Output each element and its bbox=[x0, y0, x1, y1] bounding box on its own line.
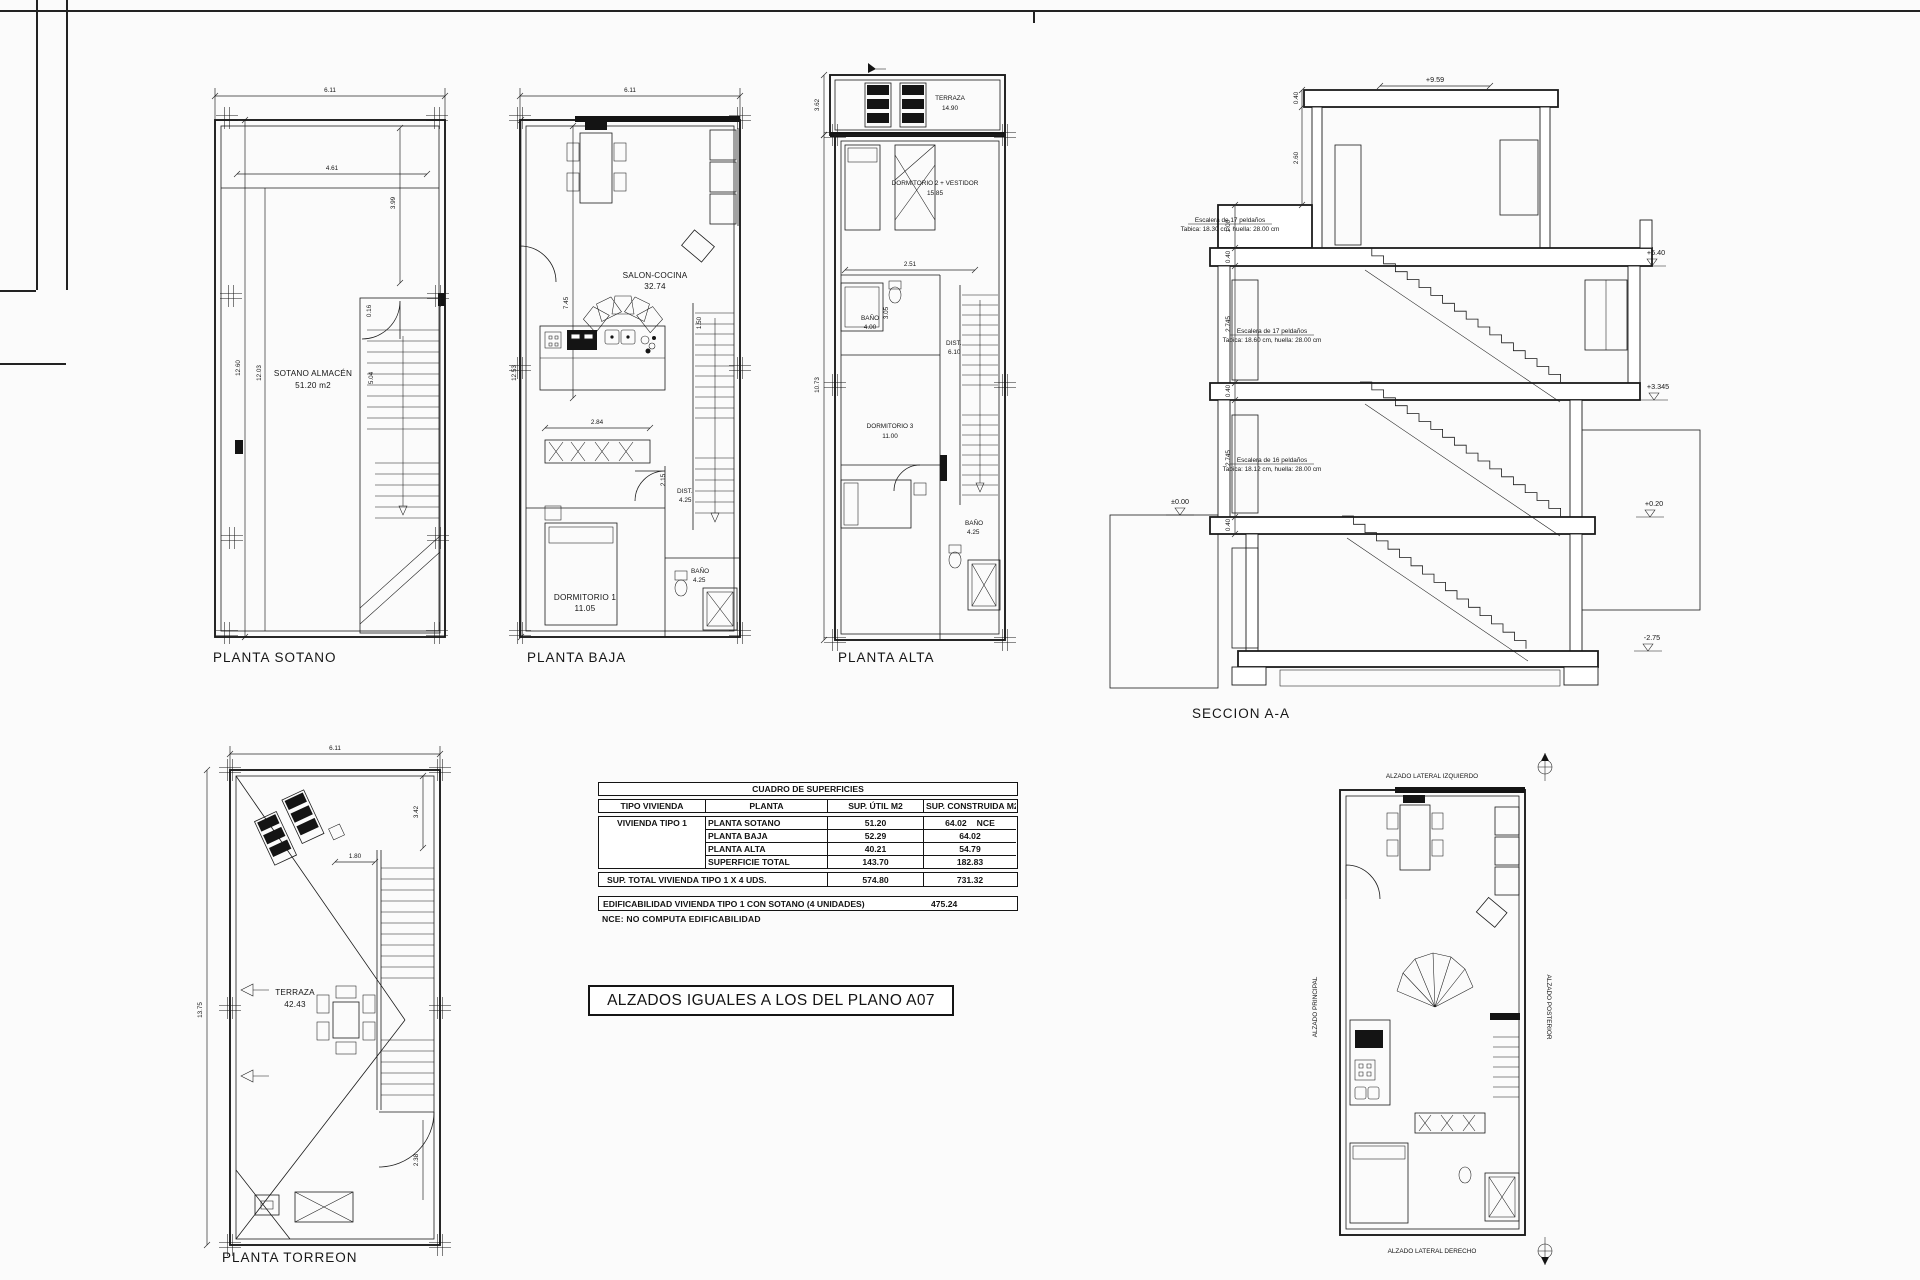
baja-wardrobe bbox=[545, 440, 650, 463]
room-area-dorm3: 11.00 bbox=[882, 433, 898, 440]
svg-text:0.40: 0.40 bbox=[1225, 384, 1232, 397]
dim-label: 10.73 bbox=[814, 377, 821, 393]
section-ground bbox=[1110, 430, 1700, 688]
torreon-table-set bbox=[317, 986, 375, 1054]
dim-label: 3.62 bbox=[814, 98, 821, 111]
room-area-dist: 6.10 bbox=[948, 349, 961, 356]
dim-label: 6.11 bbox=[324, 87, 336, 94]
svg-text:0.40: 0.40 bbox=[1225, 250, 1232, 263]
sheet-frame-left-inner bbox=[66, 0, 68, 290]
dim-label: 13.75 bbox=[197, 1002, 204, 1018]
title-planta-alta: PLANTA ALTA bbox=[838, 650, 935, 665]
title-planta-baja: PLANTA BAJA bbox=[527, 650, 626, 665]
room-area-terraza: 14.90 bbox=[942, 105, 958, 112]
svg-text:Tabica: 18.12 cm, huella: 28.0: Tabica: 18.12 cm, huella: 28.00 cm bbox=[1223, 466, 1322, 473]
dim-label: 3.05 bbox=[883, 306, 890, 319]
title-seccion: SECCION A-A bbox=[1192, 706, 1290, 721]
alta-columns bbox=[824, 124, 1016, 651]
dim-label: 2.51 bbox=[904, 261, 917, 268]
svg-text:Escalera de 16 peldaños: Escalera de 16 peldaños bbox=[1237, 457, 1307, 464]
baja-walls bbox=[520, 116, 740, 637]
room-area-dist: 4.25 bbox=[679, 497, 692, 504]
room-area-bano1: 4.00 bbox=[864, 324, 877, 331]
plan-baja: 6.11 12.53 7.45 2.84 2.15 bbox=[505, 68, 760, 668]
plan-torreon: 6.11 13.75 3.42 1.80 2.38 bbox=[195, 740, 465, 1264]
dim-label: 3.99 bbox=[390, 196, 397, 209]
dim-label: 5.04 bbox=[368, 371, 375, 384]
nce-tag: NCE bbox=[977, 818, 995, 828]
room-area-terraza-torreon: 42.43 bbox=[284, 1000, 306, 1009]
table-title: CUADRO DE SUPERFICIES bbox=[598, 782, 1018, 796]
alta-stair bbox=[960, 285, 998, 505]
dim-label: 12.60 bbox=[235, 360, 242, 376]
alzado-key-plan: ALZADO LATERAL IZQUIERDO ALZADO PRINCIPA… bbox=[1295, 745, 1565, 1273]
room-label-dorm3: DORMITORIO 3 bbox=[867, 423, 914, 430]
baja-bath bbox=[675, 571, 737, 630]
room-label-sotano: SOTANO ALMACÉN bbox=[274, 368, 352, 378]
table-edificabilidad-row: EDIFICABILIDAD VIVIENDA TIPO 1 CON SOTAN… bbox=[598, 896, 1018, 911]
dim-label: 12.53 bbox=[511, 365, 518, 381]
table-total-row: SUP. TOTAL VIVIENDA TIPO 1 X 4 UDS. 574.… bbox=[598, 872, 1018, 887]
title-planta-torreon: PLANTA TORREON bbox=[222, 1250, 358, 1265]
dim-label: 4.61 bbox=[326, 165, 339, 172]
svg-text:0.40: 0.40 bbox=[1293, 91, 1300, 104]
alta-dorm3 bbox=[841, 465, 926, 528]
room-label-dorm1: DORMITORIO 1 bbox=[554, 593, 617, 602]
col-planta: PLANTA bbox=[706, 800, 828, 812]
alzado-label-right: ALZADO POSTERIOR bbox=[1545, 975, 1552, 1040]
svg-text:2.60: 2.60 bbox=[1293, 151, 1300, 164]
section-stairs bbox=[1342, 248, 1561, 661]
sotano-stair: 5.04 0.16 bbox=[360, 298, 440, 633]
torreon-bottom-fixtures bbox=[255, 1192, 353, 1222]
torreon-columns bbox=[219, 759, 451, 1256]
room-label-dist: DIST. bbox=[946, 340, 962, 347]
room-label-bano2: BAÑO bbox=[965, 518, 983, 527]
dim-label: 2.15 bbox=[660, 473, 667, 486]
table-row: PLANTA BAJA 52.29 64.02 bbox=[599, 829, 1017, 842]
section-levels: +9.59 +6.40 +3.345 +0.20 -2.75 ±0.00 bbox=[1166, 75, 1669, 651]
baja-sofa bbox=[682, 128, 738, 262]
torreon-sunloungers bbox=[251, 782, 344, 867]
svg-text:Escalera de 17 peldaños: Escalera de 17 peldaños bbox=[1195, 217, 1265, 224]
level-f1: +3.345 bbox=[1647, 382, 1669, 391]
baja-dimensions: 6.11 12.53 7.45 2.84 2.15 bbox=[511, 87, 743, 640]
dim-label: 2.38 bbox=[413, 1153, 420, 1166]
col-tipo: TIPO VIVIENDA bbox=[599, 800, 706, 812]
torreon-walls bbox=[230, 770, 440, 1245]
room-area-bano2: 4.25 bbox=[967, 529, 980, 536]
col-util: SUP. ÚTIL M2 bbox=[828, 800, 924, 812]
section-aa: 0.40 2.60 1.00 0.40 2.745 0.40 2.745 0.4… bbox=[1080, 70, 1740, 710]
alta-dorm2: 2.51 bbox=[842, 145, 978, 273]
dim-label: 2.84 bbox=[591, 419, 604, 426]
section-structure bbox=[1210, 90, 1652, 685]
dim-label: 7.45 bbox=[563, 296, 570, 309]
alta-bano2 bbox=[949, 545, 1000, 610]
room-label-bano: BAÑO bbox=[691, 566, 709, 575]
svg-text:2.745: 2.745 bbox=[1225, 450, 1232, 466]
room-label-dist: DIST. bbox=[677, 488, 693, 495]
alzado-label-left: ALZADO PRINCIPAL bbox=[1312, 976, 1319, 1037]
col-construida: SUP. CONSTRUIDA M2 bbox=[924, 800, 1016, 812]
level-grade: ±0.00 bbox=[1171, 497, 1189, 506]
level-f2: +6.40 bbox=[1647, 248, 1665, 257]
torreon-slope-arrows bbox=[241, 984, 269, 1082]
section-cut-marker-icon bbox=[868, 63, 886, 73]
sheet-frame-left-h1 bbox=[0, 290, 36, 292]
table-row: PLANTA ALTA 40.21 54.79 bbox=[599, 842, 1017, 855]
svg-text:Tabica: 18.60 cm, huella: 28.0: Tabica: 18.60 cm, huella: 28.00 cm bbox=[1223, 337, 1322, 344]
keyplan-walls bbox=[1340, 787, 1525, 1235]
svg-text:2.745: 2.745 bbox=[1225, 316, 1232, 332]
baja-door-entry bbox=[520, 246, 556, 282]
level-f0: +0.20 bbox=[1645, 499, 1663, 508]
level-fb: -2.75 bbox=[1644, 633, 1660, 642]
room-area-dorm1: 11.05 bbox=[575, 604, 596, 613]
baja-stair: 1.50 bbox=[693, 303, 734, 530]
dim-label: 0.16 bbox=[366, 304, 373, 317]
nce-note: NCE: NO COMPUTA EDIFICABILIDAD bbox=[602, 914, 761, 924]
dim-label: 3.42 bbox=[413, 805, 420, 818]
alzado-label-bottom: ALZADO LATERAL DERECHO bbox=[1388, 1248, 1477, 1255]
sheet-frame-left-outer bbox=[36, 0, 38, 290]
torreon-stair bbox=[377, 850, 434, 1167]
alzados-note-box: ALZADOS IGUALES A LOS DEL PLANO A07 bbox=[588, 985, 954, 1016]
room-area-bano: 4.25 bbox=[693, 577, 706, 584]
orientation-marker-icon bbox=[1538, 1237, 1552, 1265]
room-label-bano1: BAÑO bbox=[861, 313, 879, 322]
orientation-marker-icon bbox=[1538, 753, 1552, 781]
sheet-frame-left-h2 bbox=[0, 363, 66, 365]
level-top: +9.59 bbox=[1426, 75, 1444, 84]
torreon-dimensions: 6.11 13.75 3.42 1.80 2.38 bbox=[197, 745, 443, 1248]
room-label-terraza-torreon: TERRAZA bbox=[275, 988, 315, 997]
svg-text:Escalera de 17 peldaños: Escalera de 17 peldaños bbox=[1237, 328, 1307, 335]
sunlounger-icon bbox=[865, 83, 926, 127]
table-header-row: TIPO VIVIENDA PLANTA SUP. ÚTIL M2 SUP. C… bbox=[598, 799, 1018, 813]
room-label-salon: SALON-COCINA bbox=[623, 271, 688, 280]
room-area-sotano: 51.20 m2 bbox=[295, 381, 331, 390]
plan-alta: 3.62 TERRAZA 14.90 10.73 2.51 3.05 bbox=[810, 55, 1025, 680]
room-area-dorm2: 15.85 bbox=[927, 190, 943, 197]
room-label-terraza: TERRAZA bbox=[935, 95, 966, 102]
drawing-sheet: { "plans": { "sotano": { "title": "PLANT… bbox=[0, 0, 1920, 1280]
baja-dining-table bbox=[567, 121, 626, 203]
room-label-dorm2: DORMITORIO 2 + VESTIDOR bbox=[892, 180, 979, 187]
svg-text:0.40: 0.40 bbox=[1225, 518, 1232, 531]
dim-label: 1.80 bbox=[349, 853, 362, 860]
surfaces-table: CUADRO DE SUPERFICIES TIPO VIVIENDA PLAN… bbox=[598, 782, 1018, 911]
alta-terraza: 3.62 TERRAZA 14.90 bbox=[814, 63, 1005, 138]
keyplan-furniture bbox=[1346, 795, 1519, 1223]
sheet-frame-top bbox=[0, 10, 1920, 12]
title-planta-sotano: PLANTA SOTANO bbox=[213, 650, 337, 665]
dim-label: 6.11 bbox=[329, 745, 341, 752]
dim-label: 12.03 bbox=[256, 365, 263, 381]
table-row: VIVIENDA TIPO 1 PLANTA SOTANO 51.20 64.0… bbox=[599, 817, 1017, 829]
baja-kitchen bbox=[540, 296, 665, 390]
room-area-salon: 32.74 bbox=[644, 282, 666, 291]
dim-label: 1.50 bbox=[696, 316, 703, 329]
svg-text:Tabica: 18.30 cm, huella: 28.0: Tabica: 18.30 cm, huella: 28.00 cm bbox=[1181, 226, 1280, 233]
alzado-label-top: ALZADO LATERAL IZQUIERDO bbox=[1386, 773, 1478, 780]
sotano-walls bbox=[215, 120, 445, 637]
sheet-frame-tick bbox=[1033, 10, 1035, 23]
tipo-value: VIVIENDA TIPO 1 bbox=[599, 817, 706, 829]
plan-sotano: 6.11 4.61 12.60 12.03 3.99 5.04 0.16 SOT… bbox=[195, 68, 465, 668]
sotano-dimensions: 6.11 4.61 12.60 12.03 3.99 bbox=[212, 87, 448, 640]
dim-label: 6.11 bbox=[624, 87, 636, 94]
table-row: SUPERFICIE TOTAL 143.70 182.83 bbox=[599, 855, 1017, 868]
